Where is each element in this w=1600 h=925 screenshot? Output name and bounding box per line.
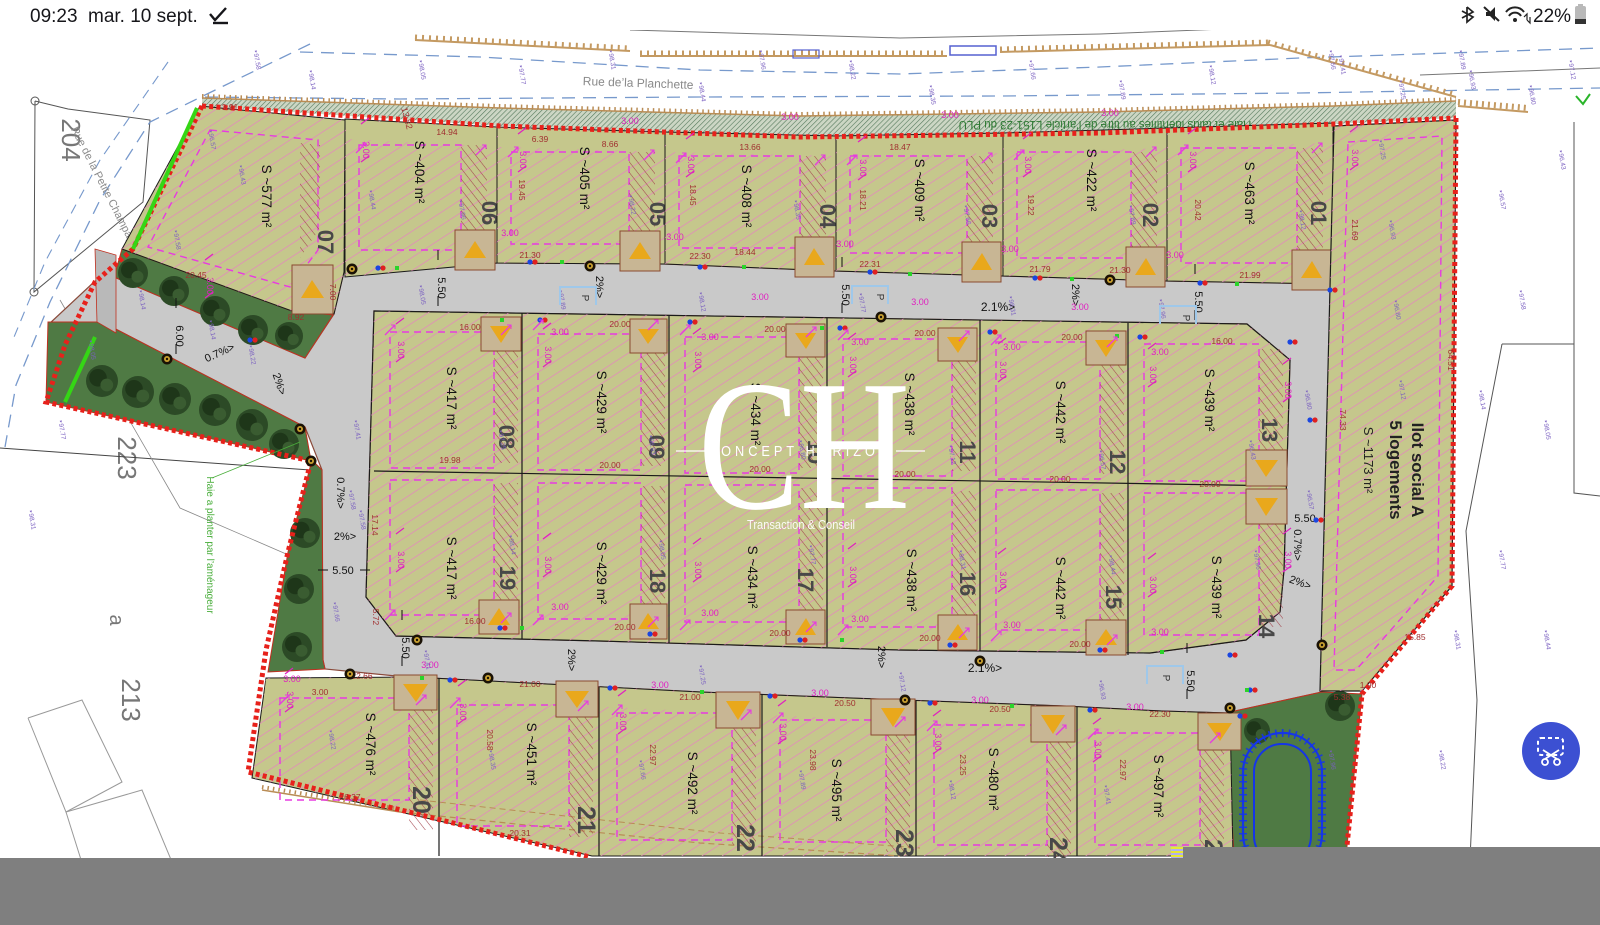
svg-text:2%>: 2%> bbox=[565, 649, 577, 671]
svg-text:20.45: 20.45 bbox=[185, 270, 207, 280]
svg-text:20.00: 20.00 bbox=[764, 324, 786, 334]
svg-text:20.50: 20.50 bbox=[834, 698, 856, 708]
svg-text:3.00: 3.00 bbox=[778, 723, 788, 741]
svg-text:20.00: 20.00 bbox=[1049, 474, 1071, 484]
svg-text:S ~492 m²: S ~492 m² bbox=[685, 752, 700, 815]
svg-text:3.00: 3.00 bbox=[396, 551, 406, 569]
svg-text:5.50: 5.50 bbox=[1192, 291, 1204, 312]
svg-text:19.98: 19.98 bbox=[439, 455, 461, 465]
svg-text:3.00: 3.00 bbox=[1003, 342, 1021, 352]
svg-text:S ~442 m²: S ~442 m² bbox=[1053, 381, 1068, 444]
svg-text:3.00: 3.00 bbox=[1151, 627, 1169, 637]
svg-text:16.00: 16.00 bbox=[459, 322, 481, 332]
svg-text:P: P bbox=[579, 295, 590, 302]
svg-text:213: 213 bbox=[116, 678, 146, 721]
svg-text:3.00: 3.00 bbox=[283, 674, 301, 684]
svg-text:18.47: 18.47 bbox=[889, 142, 911, 152]
svg-text:Transaction & Conseil: Transaction & Conseil bbox=[747, 518, 855, 532]
svg-text:3.00: 3.00 bbox=[312, 687, 329, 697]
svg-text:3.00: 3.00 bbox=[518, 151, 528, 169]
svg-text:19: 19 bbox=[495, 566, 520, 590]
svg-text:3.00: 3.00 bbox=[1188, 151, 1198, 169]
svg-text:3.00: 3.00 bbox=[1003, 620, 1021, 630]
svg-text:3.00: 3.00 bbox=[1093, 741, 1103, 759]
svg-text:03: 03 bbox=[977, 204, 1002, 228]
svg-text:20.58: 20.58 bbox=[485, 729, 495, 751]
svg-text:P: P bbox=[1160, 675, 1171, 682]
svg-text:3.00: 3.00 bbox=[971, 695, 989, 705]
svg-text:09:23: 09:23 bbox=[30, 6, 78, 27]
svg-text:S ~438 m²: S ~438 m² bbox=[904, 549, 919, 612]
svg-text:1.90: 1.90 bbox=[1360, 680, 1377, 690]
svg-text:6.39: 6.39 bbox=[532, 134, 549, 144]
svg-text:3.00: 3.00 bbox=[458, 703, 468, 721]
svg-text:20.00: 20.00 bbox=[1061, 332, 1083, 342]
svg-text:21: 21 bbox=[572, 806, 600, 834]
svg-text:3.00: 3.00 bbox=[941, 110, 959, 120]
svg-text:26.37: 26.37 bbox=[339, 792, 361, 802]
svg-text:22.31: 22.31 bbox=[859, 259, 881, 269]
svg-text:3.00: 3.00 bbox=[1166, 250, 1184, 260]
svg-text:22%: 22% bbox=[1533, 6, 1571, 27]
svg-text:5.50: 5.50 bbox=[399, 637, 411, 658]
svg-text:2%>: 2%> bbox=[334, 531, 356, 543]
svg-text:3.00: 3.00 bbox=[543, 556, 553, 574]
svg-text:3.00: 3.00 bbox=[396, 341, 406, 359]
svg-text:3.00: 3.00 bbox=[998, 361, 1008, 379]
svg-text:3.00: 3.00 bbox=[858, 159, 868, 177]
svg-text:3.00: 3.00 bbox=[1148, 366, 1158, 384]
svg-text:CONCEPT HORIZON: CONCEPT HORIZON bbox=[708, 444, 892, 460]
svg-text:S ~417 m²: S ~417 m² bbox=[444, 367, 459, 430]
svg-text:01: 01 bbox=[1306, 201, 1331, 225]
svg-text:19.45: 19.45 bbox=[517, 179, 527, 201]
svg-text:22.30: 22.30 bbox=[1149, 709, 1171, 719]
svg-text:07: 07 bbox=[313, 230, 338, 254]
svg-text:7.00: 7.00 bbox=[328, 284, 338, 301]
svg-text:3.00: 3.00 bbox=[701, 332, 719, 342]
svg-text:64.51: 64.51 bbox=[1446, 349, 1456, 371]
svg-text:mar. 10 sept.: mar. 10 sept. bbox=[88, 6, 198, 27]
svg-text:3.00: 3.00 bbox=[1151, 347, 1169, 357]
svg-text:3.00: 3.00 bbox=[751, 292, 769, 302]
svg-text:20.00: 20.00 bbox=[919, 633, 941, 643]
svg-text:20.00: 20.00 bbox=[914, 328, 936, 338]
svg-text:S ~408 m²: S ~408 m² bbox=[739, 165, 754, 228]
svg-text:18.44: 18.44 bbox=[734, 247, 756, 257]
svg-text:18.45: 18.45 bbox=[688, 184, 698, 206]
svg-text:3.00: 3.00 bbox=[781, 112, 799, 122]
svg-text:5.50: 5.50 bbox=[1184, 670, 1196, 691]
svg-text:S ~1173 m²: S ~1173 m² bbox=[1361, 427, 1376, 494]
svg-text:3.00: 3.00 bbox=[1023, 156, 1033, 174]
svg-text:5.50: 5.50 bbox=[332, 565, 353, 577]
svg-text:5.50: 5.50 bbox=[435, 277, 447, 298]
svg-text:3.00: 3.00 bbox=[1350, 149, 1360, 167]
svg-text:S ~417 m²: S ~417 m² bbox=[444, 537, 459, 600]
svg-text:3.00: 3.00 bbox=[543, 346, 553, 364]
svg-text:2%>: 2%> bbox=[875, 646, 887, 668]
svg-text:3.00: 3.00 bbox=[651, 680, 669, 690]
svg-text:5.38: 5.38 bbox=[1334, 692, 1351, 702]
svg-text:3.00: 3.00 bbox=[666, 232, 684, 242]
svg-text:20.00: 20.00 bbox=[614, 622, 636, 632]
svg-text:21.69: 21.69 bbox=[1350, 219, 1360, 241]
svg-text:22.30: 22.30 bbox=[689, 251, 711, 261]
svg-text:3.00: 3.00 bbox=[1126, 702, 1144, 712]
svg-text:S ~429 m²: S ~429 m² bbox=[594, 542, 609, 605]
svg-text:23.25: 23.25 bbox=[958, 754, 968, 776]
svg-text:3.00: 3.00 bbox=[693, 561, 703, 579]
svg-text:3.00: 3.00 bbox=[836, 239, 854, 249]
svg-text:8.66: 8.66 bbox=[602, 139, 619, 149]
svg-text:3.00: 3.00 bbox=[686, 156, 696, 174]
svg-text:Ilot social A: Ilot social A bbox=[1408, 423, 1427, 518]
svg-text:14.94: 14.94 bbox=[436, 127, 458, 137]
svg-text:S ~439 m²: S ~439 m² bbox=[1202, 369, 1217, 432]
svg-text:21.79: 21.79 bbox=[1029, 264, 1051, 274]
svg-text:21.30: 21.30 bbox=[519, 250, 541, 260]
svg-text:14: 14 bbox=[1254, 614, 1279, 639]
svg-text:S ~497 m²: S ~497 m² bbox=[1151, 755, 1166, 818]
svg-text:20.31: 20.31 bbox=[509, 828, 531, 838]
svg-text:3.00: 3.00 bbox=[205, 277, 215, 295]
svg-text:20.00: 20.00 bbox=[599, 460, 621, 470]
svg-text:3.00: 3.00 bbox=[501, 228, 519, 238]
svg-text:P: P bbox=[1180, 315, 1191, 322]
svg-text:21.30: 21.30 bbox=[1109, 265, 1131, 275]
svg-text:3.00: 3.00 bbox=[621, 116, 639, 126]
svg-text:22.97: 22.97 bbox=[648, 744, 658, 766]
svg-text:8.92: 8.92 bbox=[288, 312, 305, 322]
svg-text:3.00: 3.00 bbox=[911, 297, 929, 307]
svg-text:P: P bbox=[874, 294, 885, 301]
svg-text:15.85: 15.85 bbox=[1404, 632, 1426, 642]
svg-text:3.00: 3.00 bbox=[618, 713, 628, 731]
svg-text:3.00: 3.00 bbox=[285, 691, 295, 709]
svg-text:16: 16 bbox=[955, 572, 980, 596]
svg-text:21.00: 21.00 bbox=[519, 679, 541, 689]
svg-text:20.42: 20.42 bbox=[1193, 199, 1203, 221]
svg-text:3.00: 3.00 bbox=[998, 571, 1008, 589]
svg-text:74.33: 74.33 bbox=[1338, 409, 1348, 431]
svg-text:5 logements: 5 logements bbox=[1386, 420, 1405, 519]
svg-text:11: 11 bbox=[955, 440, 980, 463]
svg-text:3.00: 3.00 bbox=[551, 327, 569, 337]
svg-text:13: 13 bbox=[1257, 418, 1282, 442]
svg-text:S ~409 m²: S ~409 m² bbox=[912, 159, 927, 222]
svg-text:20.00: 20.00 bbox=[769, 628, 791, 638]
svg-text:02: 02 bbox=[1138, 203, 1163, 227]
svg-text:S ~404 m²: S ~404 m² bbox=[412, 141, 427, 204]
svg-text:15: 15 bbox=[1101, 585, 1126, 609]
svg-text:3.00: 3.00 bbox=[1283, 381, 1293, 399]
svg-text:23.98: 23.98 bbox=[808, 749, 818, 771]
svg-text:3.00: 3.00 bbox=[1283, 551, 1293, 569]
svg-text:20.00: 20.00 bbox=[1199, 479, 1221, 489]
svg-text:21.99: 21.99 bbox=[1239, 270, 1261, 280]
svg-text:S ~405 m²: S ~405 m² bbox=[577, 147, 592, 210]
svg-text:3.00: 3.00 bbox=[848, 566, 858, 584]
svg-text:23: 23 bbox=[890, 829, 918, 857]
svg-text:18: 18 bbox=[645, 569, 670, 593]
svg-text:12: 12 bbox=[1105, 450, 1130, 474]
svg-text:16.00: 16.00 bbox=[1211, 336, 1233, 346]
svg-text:16.00: 16.00 bbox=[464, 616, 486, 626]
svg-text:20.50: 20.50 bbox=[989, 704, 1011, 714]
svg-text:5.50: 5.50 bbox=[839, 284, 851, 305]
svg-text:3.00: 3.00 bbox=[933, 733, 943, 751]
svg-text:18.21: 18.21 bbox=[858, 189, 868, 211]
svg-text:22: 22 bbox=[731, 824, 759, 852]
svg-text:20: 20 bbox=[407, 786, 435, 814]
svg-text:S ~577 m²: S ~577 m² bbox=[259, 165, 274, 228]
svg-text:3.00: 3.00 bbox=[851, 614, 869, 624]
svg-text:6.00: 6.00 bbox=[173, 325, 185, 346]
svg-text:5.50: 5.50 bbox=[1294, 513, 1315, 525]
svg-text:S ~476 m²: S ~476 m² bbox=[363, 713, 378, 776]
svg-text:20.00: 20.00 bbox=[609, 319, 631, 329]
svg-text:5.72: 5.72 bbox=[371, 609, 381, 626]
svg-text:3.00: 3.00 bbox=[1001, 244, 1019, 254]
svg-text:S ~439 m²: S ~439 m² bbox=[1209, 556, 1224, 619]
svg-text:S ~480 m²: S ~480 m² bbox=[986, 748, 1001, 811]
svg-text:13.66: 13.66 bbox=[739, 142, 761, 152]
svg-text:S ~463 m²: S ~463 m² bbox=[1242, 162, 1257, 225]
svg-text:Haie a planter par l’aménageur: Haie a planter par l’aménageur bbox=[204, 476, 215, 614]
svg-text:22.97: 22.97 bbox=[1118, 759, 1128, 781]
svg-text:S ~434 m²: S ~434 m² bbox=[745, 546, 760, 609]
svg-text:3.91: 3.91 bbox=[222, 102, 239, 112]
svg-text:17: 17 bbox=[793, 568, 818, 592]
svg-text:19.22: 19.22 bbox=[1026, 194, 1036, 216]
svg-text:20.00: 20.00 bbox=[1069, 639, 1091, 649]
svg-text:17.14: 17.14 bbox=[370, 514, 380, 536]
svg-text:3.00: 3.00 bbox=[551, 602, 569, 612]
svg-text:0.7%>: 0.7%> bbox=[334, 477, 346, 509]
svg-text:3.00: 3.00 bbox=[1148, 576, 1158, 594]
svg-text:21.00: 21.00 bbox=[679, 692, 701, 702]
svg-text:3.00: 3.00 bbox=[811, 688, 829, 698]
svg-text:S ~442 m²: S ~442 m² bbox=[1053, 557, 1068, 620]
svg-text:3.00: 3.00 bbox=[701, 608, 719, 618]
svg-text:3.00: 3.00 bbox=[1071, 302, 1089, 312]
svg-text:S ~429 m²: S ~429 m² bbox=[594, 371, 609, 434]
svg-text:S ~495 m²: S ~495 m² bbox=[829, 759, 844, 822]
svg-text:3.00: 3.00 bbox=[1101, 108, 1119, 118]
svg-text:S ~422 m²: S ~422 m² bbox=[1084, 149, 1099, 212]
svg-text:a: a bbox=[105, 614, 127, 626]
svg-text:S ~451 m²: S ~451 m² bbox=[524, 723, 539, 786]
